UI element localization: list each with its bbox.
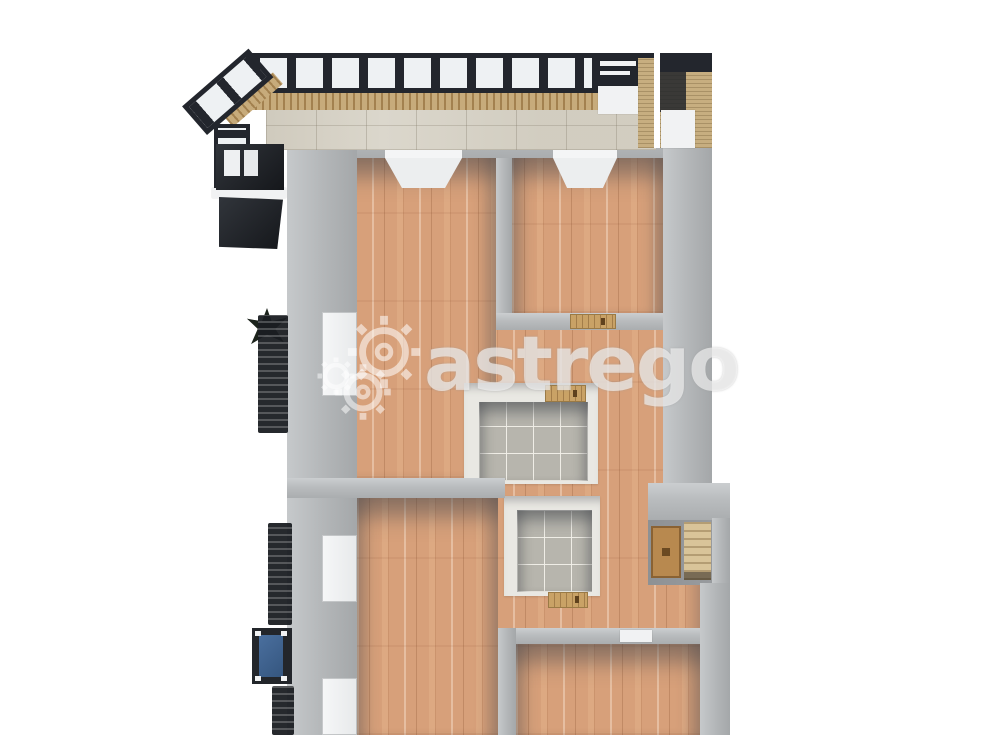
bathroom-lower-door (548, 592, 588, 608)
room-bottom-left (357, 498, 498, 735)
room-bottom-right (516, 644, 700, 735)
door-threshold-top-right-room (570, 314, 616, 329)
wall-alcove-rim (712, 518, 730, 585)
window-left-1 (322, 312, 357, 396)
french-balcony-railing-2 (268, 523, 292, 625)
wall-right-lower (700, 583, 730, 735)
window-left-3 (322, 678, 357, 735)
bathroom-upper-door (545, 385, 586, 402)
compartment-dark-band (660, 53, 712, 72)
compartment-shadow (660, 72, 686, 112)
floor-plan-canvas: astrego (0, 0, 1000, 735)
balcony-vent-slat-2 (600, 71, 630, 75)
wall-left-rooms-separator (287, 478, 505, 498)
wall-divider-top-rooms (496, 158, 512, 330)
blue-glass-panel (252, 628, 292, 684)
balcony-lower-dark-box (219, 197, 283, 249)
balcony-floor-box (598, 86, 638, 114)
wall-left (287, 113, 357, 735)
french-balcony-railing-1 (258, 315, 288, 433)
entrance-door (651, 526, 681, 578)
wall-right-upper (663, 113, 712, 483)
wall-bottom-vertical (498, 628, 516, 735)
wall-right-bump (648, 483, 730, 520)
bathroom-lower-tile-floor (517, 510, 592, 592)
balcony-vent-slat-1 (600, 61, 636, 66)
window-left-2 (322, 535, 357, 602)
wall-hall-bottom (498, 628, 712, 644)
compartment-shelf (661, 110, 695, 148)
french-balcony-railing-3 (272, 686, 294, 735)
balcony-lower-window-box (216, 144, 284, 190)
bathroom-upper-tile-floor (479, 402, 588, 481)
door-sill-bottom-right-room (620, 630, 652, 642)
entrance-cabinet (684, 522, 711, 580)
